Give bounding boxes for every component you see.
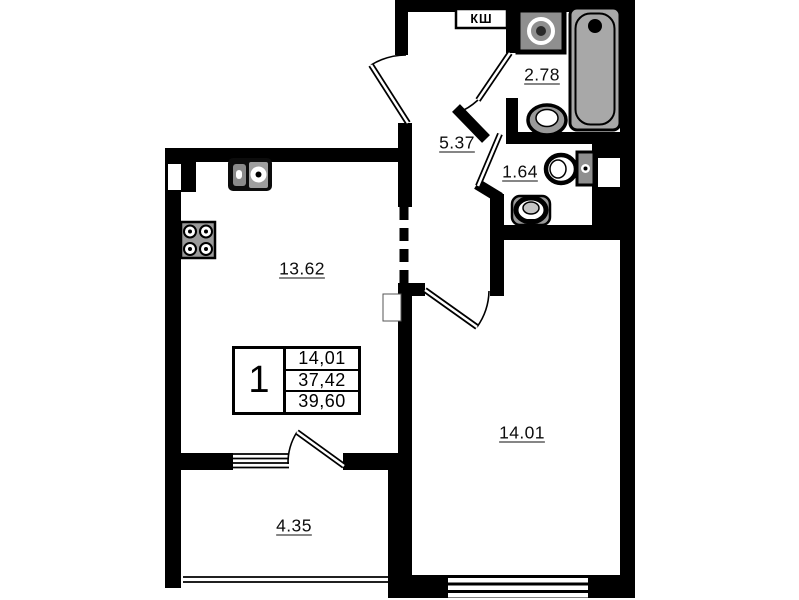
room-label-hallway: 5.37 bbox=[439, 133, 475, 154]
wall-segment bbox=[620, 0, 635, 598]
room-label-living-room: 14.01 bbox=[499, 423, 545, 444]
wall-segment bbox=[395, 0, 408, 55]
floor-plan: КШ 13.62 5.37 2.78 1.64 14.01 4.35 1 14,… bbox=[0, 0, 799, 600]
area-rows: 14,01 37,42 39,60 bbox=[283, 349, 358, 412]
room-label-kitchen: 13.62 bbox=[279, 259, 325, 280]
bathroom-door bbox=[459, 53, 510, 112]
info-table: 1 14,01 37,42 39,60 bbox=[232, 346, 361, 415]
wall-segment bbox=[506, 98, 518, 134]
kitchen-wall-niche bbox=[383, 294, 401, 321]
unit-number: 1 bbox=[235, 349, 283, 412]
vent-shaft-niche bbox=[168, 164, 181, 190]
wall-segment bbox=[165, 148, 181, 588]
room-label-toilet: 1.64 bbox=[502, 162, 538, 183]
entrance-door bbox=[371, 55, 408, 123]
total-area-value: 39,60 bbox=[286, 392, 358, 412]
living-room-window bbox=[448, 578, 588, 598]
balcony-glazing bbox=[183, 577, 390, 582]
bathroom-sink-icon bbox=[528, 105, 566, 135]
wall-segment bbox=[398, 123, 412, 207]
wall-segment bbox=[165, 453, 233, 470]
apartment-area-value: 37,42 bbox=[286, 371, 358, 393]
wall-segment bbox=[490, 225, 635, 240]
wall-segment bbox=[343, 453, 412, 470]
living-room-door bbox=[425, 290, 489, 327]
shaft-label: КШ bbox=[456, 9, 507, 28]
stove-icon bbox=[181, 222, 215, 258]
plumbing-shaft-niche bbox=[598, 158, 620, 187]
kitchen-sink-icon bbox=[228, 158, 272, 191]
room-label-bathroom: 2.78 bbox=[524, 65, 560, 86]
living-area-value: 14,01 bbox=[286, 349, 358, 371]
floor-plan-canvas bbox=[0, 0, 799, 600]
room-label-balcony: 4.35 bbox=[276, 516, 312, 537]
wall-segment bbox=[165, 148, 410, 162]
toilet-icon bbox=[546, 152, 594, 185]
wall-segment bbox=[181, 162, 196, 192]
balcony-door bbox=[288, 432, 344, 466]
bathtub-icon bbox=[570, 8, 620, 130]
washing-machine-icon bbox=[518, 10, 564, 52]
kitchen-window bbox=[233, 454, 289, 468]
toilet-sink-icon bbox=[512, 196, 550, 225]
wall-segment bbox=[490, 194, 504, 296]
